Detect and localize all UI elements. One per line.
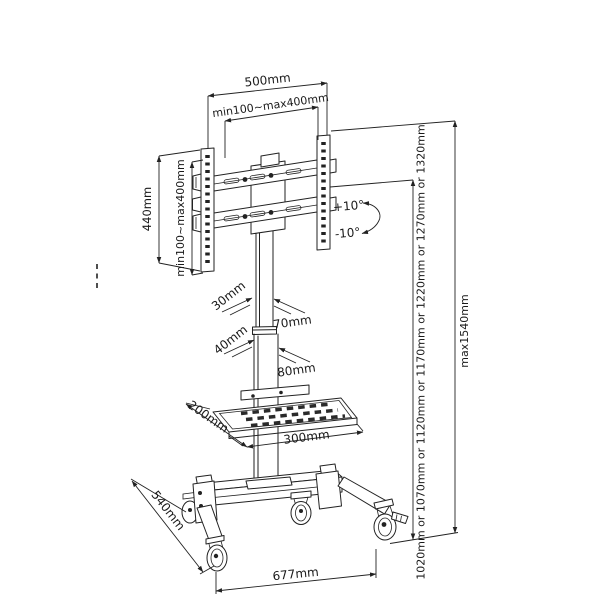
right-rail-upper-clip — [330, 159, 336, 173]
front-right-caster — [374, 499, 408, 540]
dimension-display-height: 1020mm or 1070mm or 1120mm or 1170mm or … — [330, 124, 458, 579]
tilt-arrow — [362, 203, 380, 234]
dimension-upper-column: 30mm 70mm — [209, 278, 313, 331]
label-shelf-width: 300mm — [283, 427, 331, 447]
dimension-vesa-width: min100~max400mm — [211, 91, 329, 158]
shelf-screw-left — [251, 394, 255, 398]
shelf-mount-plate — [241, 385, 309, 400]
label-max-height: max1540mm — [458, 294, 471, 367]
label-mount-width: 500mm — [244, 71, 292, 90]
dimension-base-width: 677mm — [216, 549, 376, 594]
tv-cart-diagram: 500mm min100~max400mm 440mm min100~max40… — [0, 0, 600, 600]
left-rail-upper-hook — [193, 174, 201, 191]
technical-drawing-page: 500mm min100~max400mm 440mm min100~max40… — [0, 0, 600, 600]
label-lower-column-depth: 40mm — [211, 322, 250, 357]
rolling-base — [182, 464, 408, 571]
label-tilt-up: +10° — [332, 198, 364, 215]
telescopic-column — [253, 231, 279, 487]
label-lower-column-width: 80mm — [276, 360, 316, 379]
label-mount-height: 440mm — [140, 187, 154, 231]
label-tilt-down: -10° — [334, 225, 361, 241]
dimension-mount-height: 440mm — [140, 150, 200, 271]
right-junction-block — [316, 471, 342, 509]
left-rail-lower-hook — [193, 214, 201, 232]
label-vesa-width-range: min100~max400mm — [211, 91, 329, 120]
vesa-mount-bracket — [193, 135, 337, 272]
front-left-caster — [206, 536, 227, 572]
shelf-screw-right — [279, 391, 283, 395]
tilt-annotation: +10° -10° — [332, 198, 380, 241]
label-display-heights: 1020mm or 1070mm or 1120mm or 1170mm or … — [415, 124, 428, 579]
label-upper-column-depth: 30mm — [209, 278, 248, 313]
label-upper-column-width: 70mm — [272, 312, 312, 331]
dimension-max-height: max1540mm — [331, 121, 471, 533]
av-shelf — [213, 385, 357, 439]
label-vesa-height-range: min100~max400mm — [174, 159, 187, 276]
middle-caster — [291, 491, 311, 525]
dimension-vesa-height: min100~max400mm — [174, 159, 203, 276]
front-right-leg — [338, 477, 391, 514]
left-rail-latch — [193, 197, 202, 212]
